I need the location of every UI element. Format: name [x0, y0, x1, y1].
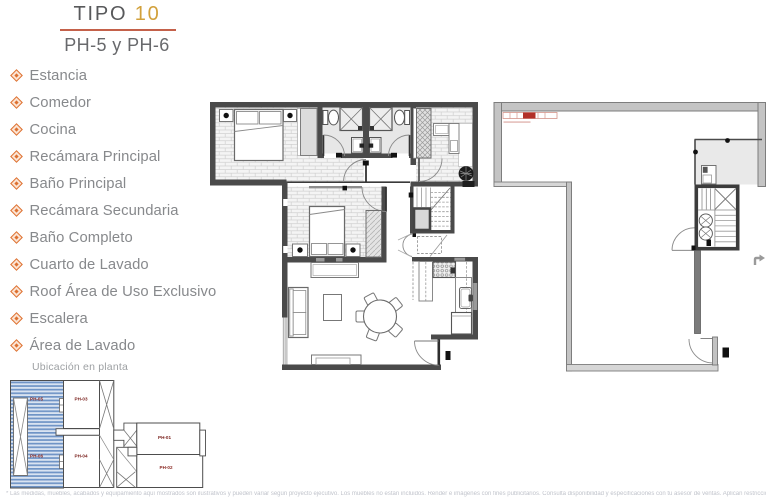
svg-text:PH-06: PH-06	[30, 453, 43, 458]
svg-text:PH-05: PH-05	[30, 397, 43, 402]
svg-text:PH-03: PH-03	[75, 397, 88, 402]
svg-text:PH-01: PH-01	[158, 435, 171, 440]
svg-text:PH-02: PH-02	[160, 465, 173, 470]
svg-text:PH-04: PH-04	[75, 453, 88, 458]
